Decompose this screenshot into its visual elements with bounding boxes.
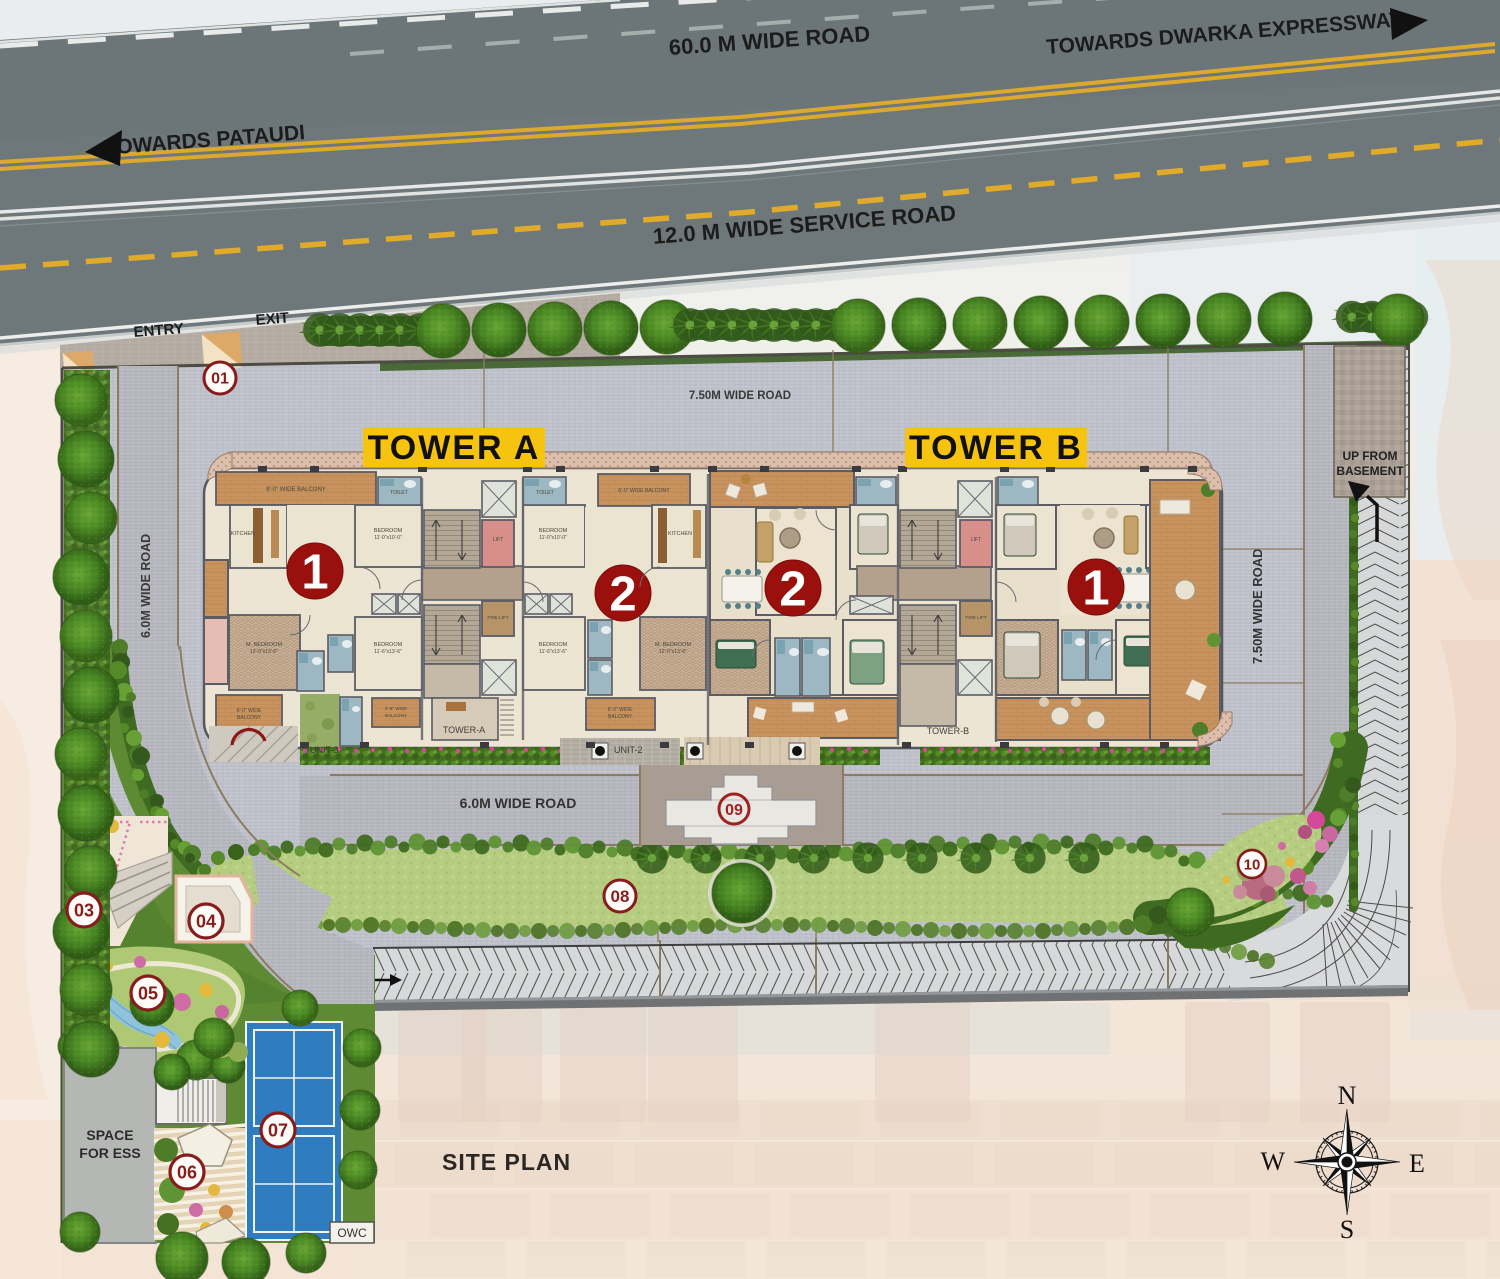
svg-text:BASEMENT: BASEMENT — [1336, 464, 1404, 478]
svg-text:KITCHEN: KITCHEN — [231, 531, 255, 537]
svg-text:07: 07 — [268, 1120, 288, 1140]
svg-text:11'-6"x13'-6": 11'-6"x13'-6" — [374, 649, 402, 655]
svg-text:6'-0" WIDE: 6'-0" WIDE — [608, 707, 633, 713]
svg-text:4'-6" WIDE: 4'-6" WIDE — [385, 706, 407, 711]
svg-text:06: 06 — [177, 1162, 197, 1182]
svg-text:11'-0"x10'-0": 11'-0"x10'-0" — [374, 535, 402, 541]
svg-text:TOWER-B: TOWER-B — [927, 726, 969, 736]
svg-text:05: 05 — [138, 983, 158, 1003]
svg-text:11'-0"x10'-0": 11'-0"x10'-0" — [539, 535, 567, 541]
svg-text:BEDROOM: BEDROOM — [374, 642, 403, 648]
svg-text:BEDROOM: BEDROOM — [539, 642, 568, 648]
svg-text:TOWER A: TOWER A — [368, 429, 541, 467]
svg-text:03: 03 — [74, 900, 94, 920]
svg-text:KITCHEN: KITCHEN — [668, 531, 692, 537]
svg-text:EXIT: EXIT — [255, 309, 290, 329]
svg-text:BALCONY: BALCONY — [237, 715, 262, 721]
svg-text:7.50M WIDE ROAD: 7.50M WIDE ROAD — [689, 390, 791, 402]
svg-text:OWC: OWC — [337, 1226, 367, 1240]
svg-text:1: 1 — [1082, 561, 1109, 615]
svg-text:8'-0" WIDE BALCONY: 8'-0" WIDE BALCONY — [266, 487, 326, 493]
svg-text:M. BEDROOM: M. BEDROOM — [246, 642, 282, 648]
svg-text:FIRE LIFT: FIRE LIFT — [487, 615, 508, 620]
svg-text:10: 10 — [1244, 856, 1261, 873]
svg-text:6'-0" WIDE BALCONY: 6'-0" WIDE BALCONY — [618, 488, 670, 494]
svg-text:09: 09 — [725, 802, 743, 819]
svg-text:BALCONY: BALCONY — [385, 713, 407, 718]
svg-text:E: E — [1409, 1149, 1425, 1178]
svg-text:UNIT-3: UNIT-3 — [310, 745, 339, 755]
svg-text:LIFT: LIFT — [971, 537, 981, 543]
svg-text:M. BEDROOM: M. BEDROOM — [655, 642, 691, 648]
svg-text:UP FROM: UP FROM — [1342, 449, 1397, 463]
svg-text:1: 1 — [301, 545, 328, 599]
svg-text:TOWER-A: TOWER-A — [443, 725, 485, 735]
svg-text:SITE PLAN: SITE PLAN — [442, 1149, 571, 1175]
svg-text:11'-6"x13'-6": 11'-6"x13'-6" — [539, 649, 567, 655]
svg-text:W: W — [1260, 1147, 1285, 1176]
svg-text:N: N — [1338, 1081, 1357, 1110]
svg-text:S: S — [1340, 1215, 1354, 1244]
svg-text:2: 2 — [779, 562, 806, 616]
svg-text:6'-0" WIDE: 6'-0" WIDE — [237, 708, 262, 714]
svg-text:12'-0"x13'-6": 12'-0"x13'-6" — [250, 649, 278, 655]
svg-text:04: 04 — [196, 911, 216, 931]
svg-text:FOR ESS: FOR ESS — [79, 1145, 140, 1161]
svg-text:BEDROOM: BEDROOM — [539, 528, 568, 534]
svg-text:12'-0"x13'-6": 12'-0"x13'-6" — [659, 649, 687, 655]
svg-text:2: 2 — [609, 567, 636, 621]
svg-text:TOILET: TOILET — [390, 490, 407, 496]
svg-text:FIRE LIFT: FIRE LIFT — [965, 615, 986, 620]
svg-text:08: 08 — [611, 887, 630, 906]
svg-text:6.0M WIDE ROAD: 6.0M WIDE ROAD — [139, 534, 153, 638]
svg-text:UNIT-2: UNIT-2 — [614, 745, 643, 755]
svg-text:TOILET: TOILET — [536, 490, 553, 496]
svg-text:TOWER B: TOWER B — [909, 429, 1083, 467]
svg-text:LIFT: LIFT — [493, 537, 503, 543]
svg-text:SPACE: SPACE — [86, 1127, 133, 1143]
svg-text:BALCONY: BALCONY — [608, 714, 633, 720]
svg-text:01: 01 — [211, 371, 229, 388]
svg-text:7.50M WIDE ROAD: 7.50M WIDE ROAD — [1250, 548, 1265, 664]
svg-text:BEDROOM: BEDROOM — [374, 528, 403, 534]
svg-text:6.0M WIDE ROAD: 6.0M WIDE ROAD — [460, 795, 577, 811]
